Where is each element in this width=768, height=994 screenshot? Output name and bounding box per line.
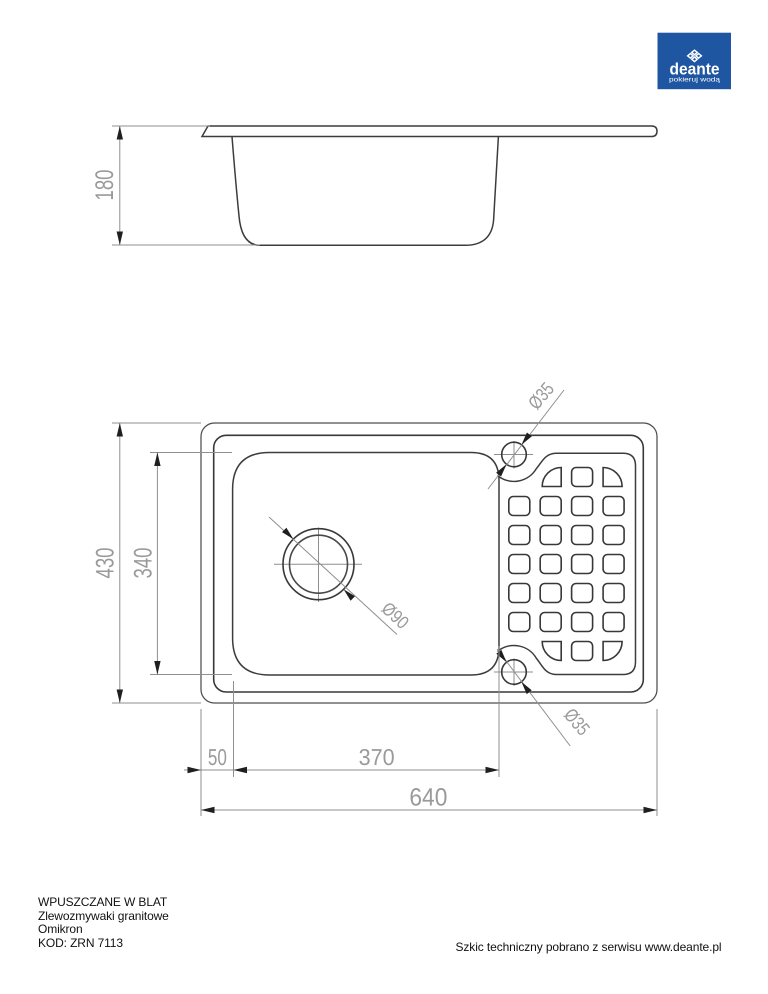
svg-text:430: 430: [92, 548, 120, 579]
svg-text:180: 180: [91, 170, 119, 201]
svg-text:pokieruj wodą: pokieruj wodą: [669, 77, 721, 84]
svg-text:Ø35: Ø35: [559, 705, 593, 740]
svg-text:640: 640: [409, 784, 447, 812]
svg-text:Ø35: Ø35: [525, 379, 559, 414]
svg-text:370: 370: [359, 744, 395, 770]
svg-text:Ø90: Ø90: [378, 598, 414, 633]
svg-text:50: 50: [208, 744, 227, 770]
svg-text:340: 340: [129, 548, 157, 579]
